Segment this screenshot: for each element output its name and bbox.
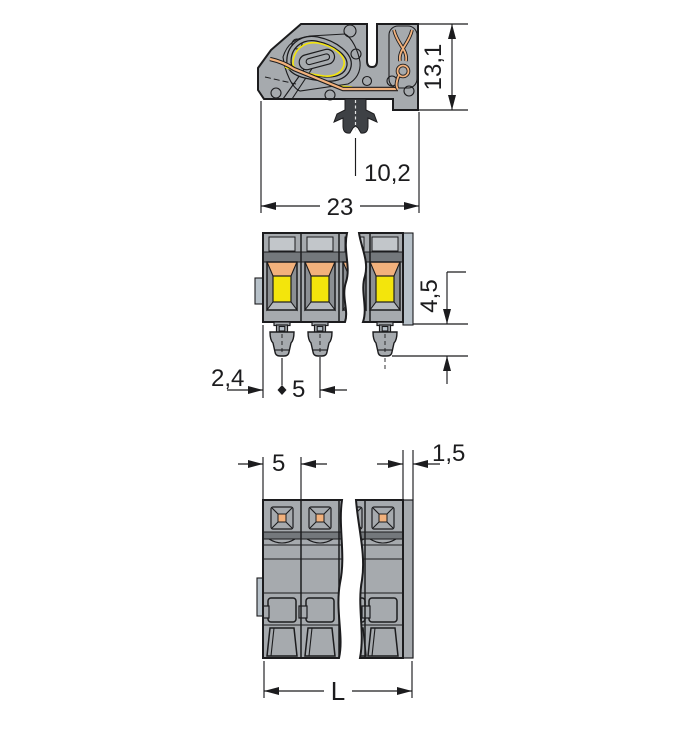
dim-label-wall: 1,5 xyxy=(432,440,465,467)
dim-label-pitch-front: 5 xyxy=(292,376,305,403)
solder-pin-1 xyxy=(270,322,294,356)
top-view-side-profile: 10,2 23 13,1 xyxy=(258,24,468,221)
middle-piece1-details xyxy=(263,233,373,322)
dimension-height-13-1: 13,1 xyxy=(419,24,468,110)
dim-label-length: L xyxy=(331,676,345,706)
dim-label-edge-offset: 2,4 xyxy=(211,365,244,392)
dimension-total-length-L: L xyxy=(264,661,412,706)
dim-label-pin-length: 4,5 xyxy=(416,279,443,312)
middle-view-front: 4,5 2,4 5 xyxy=(211,233,468,403)
end-wall-strip xyxy=(403,500,413,658)
dim-label-width: 23 xyxy=(327,194,354,221)
dimension-foot-offset: 10,2 xyxy=(356,138,411,187)
wire-entry-1 xyxy=(267,262,297,310)
connector-dimension-drawing: 10,2 23 13,1 xyxy=(0,0,697,732)
bottom-view-top-face: 5 1,5 L xyxy=(238,440,465,706)
dimension-pitch-5-top: 5 xyxy=(238,450,327,500)
dim-label-pitch-top: 5 xyxy=(272,450,285,477)
clamp-opening-2 xyxy=(309,507,331,529)
solder-pin-3 xyxy=(373,322,397,356)
solder-pin-2 xyxy=(308,322,332,356)
clamp-opening-3 xyxy=(372,507,394,529)
snap-in-foot xyxy=(334,99,377,133)
clamp-opening-1 xyxy=(271,507,293,529)
dimension-wall-1-5: 1,5 xyxy=(377,440,465,500)
dim-label-height: 13,1 xyxy=(420,44,447,91)
housing-side-outline xyxy=(258,24,418,110)
technical-drawing-page: 10,2 23 13,1 xyxy=(0,0,697,732)
dim-label-foot-offset: 10,2 xyxy=(364,160,411,187)
wire-entry-3 xyxy=(370,262,400,310)
end-plate-right xyxy=(403,233,413,325)
dimension-edge-offset-2-4: 2,4 xyxy=(211,325,263,398)
wire-entry-2 xyxy=(305,262,335,310)
dimension-pitch-5-front: 5 xyxy=(278,357,348,403)
side-tab-left xyxy=(255,278,263,304)
